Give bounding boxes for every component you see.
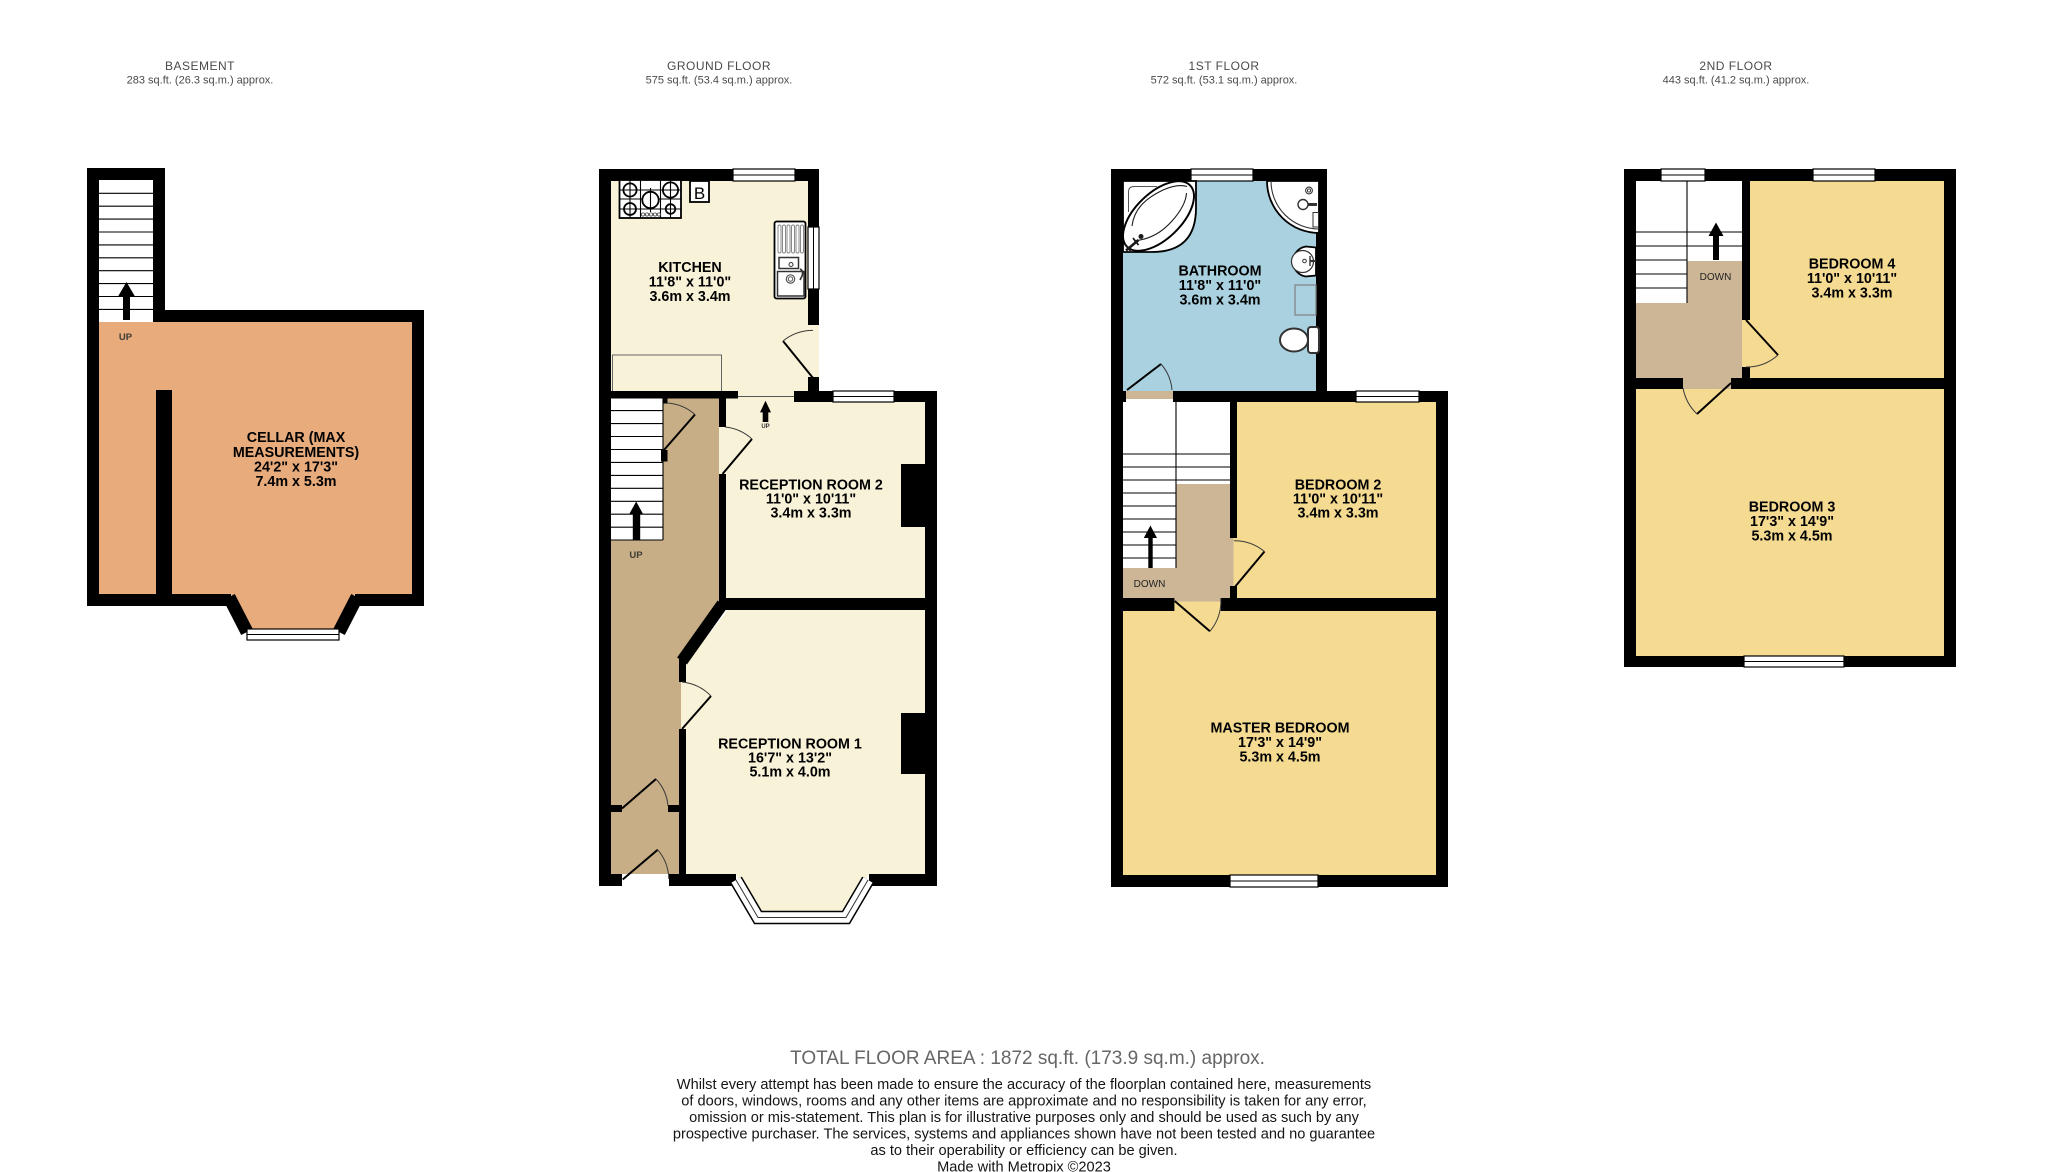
svg-text:5.3m x 4.5m: 5.3m x 4.5m (1239, 750, 1320, 766)
svg-text:GROUND FLOOR: GROUND FLOOR (667, 59, 771, 73)
svg-text:572 sq.ft. (53.1 sq.m.) approx: 572 sq.ft. (53.1 sq.m.) approx. (1151, 75, 1298, 87)
svg-text:BASEMENT: BASEMENT (165, 59, 235, 73)
svg-text:omission or mis-statement. Thi: omission or mis-statement. This plan is … (689, 1110, 1359, 1126)
svg-text:3.6m x 3.4m: 3.6m x 3.4m (1179, 293, 1260, 309)
svg-text:5.1m x 4.0m: 5.1m x 4.0m (749, 765, 830, 781)
svg-text:as to their operability or eff: as to their operability or efficiency ca… (870, 1143, 1177, 1159)
svg-text:443 sq.ft. (41.2 sq.m.) approx: 443 sq.ft. (41.2 sq.m.) approx. (1663, 75, 1810, 87)
svg-text:UP: UP (761, 424, 769, 430)
svg-text:UP: UP (629, 550, 643, 561)
svg-text:TOTAL FLOOR AREA : 1872 sq.ft.: TOTAL FLOOR AREA : 1872 sq.ft. (173.9 sq… (790, 1048, 1265, 1069)
svg-text:Whilst every attempt has been: Whilst every attempt has been made to en… (677, 1077, 1371, 1093)
svg-text:B: B (694, 184, 705, 203)
svg-text:283 sq.ft. (26.3 sq.m.) approx: 283 sq.ft. (26.3 sq.m.) approx. (127, 75, 274, 87)
svg-text:DOWN: DOWN (1134, 579, 1166, 590)
svg-text:Made with Metropix ©2023: Made with Metropix ©2023 (937, 1159, 1111, 1172)
svg-text:prospective purchaser. The ser: prospective purchaser. The services, sys… (673, 1127, 1375, 1143)
svg-text:DOWN: DOWN (1700, 272, 1732, 283)
svg-text:1ST FLOOR: 1ST FLOOR (1189, 59, 1260, 73)
svg-text:3.4m x 3.3m: 3.4m x 3.3m (770, 506, 851, 522)
svg-text:575 sq.ft. (53.4 sq.m.) approx: 575 sq.ft. (53.4 sq.m.) approx. (646, 75, 793, 87)
svg-text:CELLAR (MAX: CELLAR (MAX (247, 430, 346, 446)
svg-text:3.6m x 3.4m: 3.6m x 3.4m (649, 289, 730, 305)
svg-text:3.4m x 3.3m: 3.4m x 3.3m (1297, 506, 1378, 522)
svg-text:3.4m x 3.3m: 3.4m x 3.3m (1811, 286, 1892, 302)
svg-text:of doors, windows, rooms and a: of doors, windows, rooms and any other i… (681, 1094, 1366, 1110)
svg-text:2ND FLOOR: 2ND FLOOR (1699, 59, 1772, 73)
svg-text:5.3m x 4.5m: 5.3m x 4.5m (1751, 529, 1832, 545)
svg-text:7.4m x 5.3m: 7.4m x 5.3m (255, 474, 336, 490)
svg-text:UP: UP (119, 332, 133, 343)
